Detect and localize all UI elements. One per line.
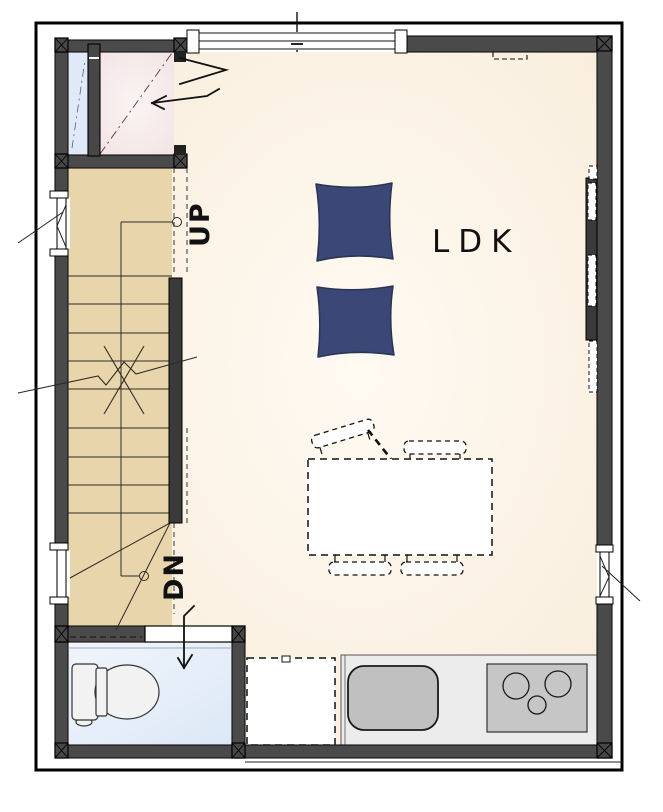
toilet-sliding-door (145, 626, 232, 642)
wall-left (55, 255, 68, 543)
dining-table (308, 459, 492, 555)
wall-right-lower (597, 598, 612, 758)
door-pocket-wall (88, 44, 100, 156)
floor-cushion (316, 183, 393, 261)
floor-cushion (317, 286, 394, 357)
wall-left (55, 604, 68, 626)
window-right (596, 545, 640, 604)
wall-bottom (55, 745, 612, 758)
door-jamb (174, 145, 186, 155)
stairs-dn-label: DN (159, 552, 190, 601)
door-jamb (174, 52, 186, 62)
floor-plan-drawing: LDK UP DN (0, 0, 663, 812)
refrigerator-space (247, 656, 335, 745)
wall-entry-bottom (55, 155, 187, 168)
kitchen (247, 655, 597, 745)
staircase-floor (68, 168, 172, 626)
stairs-up-label: UP (185, 201, 216, 247)
wall-toilet-right (232, 626, 245, 758)
window-left-upper (18, 191, 70, 256)
entry-closet-floor (88, 52, 174, 156)
wall-right-upper (597, 36, 612, 552)
wall-left (55, 168, 68, 191)
wall-top-right (407, 36, 612, 52)
stair-handrail-wall (169, 278, 182, 523)
floor-plan-canvas: LDK UP DN (0, 0, 663, 812)
kitchen-sink (348, 666, 438, 730)
window-left-lower (50, 543, 70, 604)
window-top-sliding (187, 30, 407, 53)
room-label-ldk: LDK (432, 224, 520, 260)
wall-left-toilet (55, 642, 68, 745)
wall-left-entry (55, 52, 68, 155)
entry-glass-panel (68, 52, 88, 156)
cooktop (487, 664, 587, 732)
wall-entry-top (55, 40, 187, 52)
